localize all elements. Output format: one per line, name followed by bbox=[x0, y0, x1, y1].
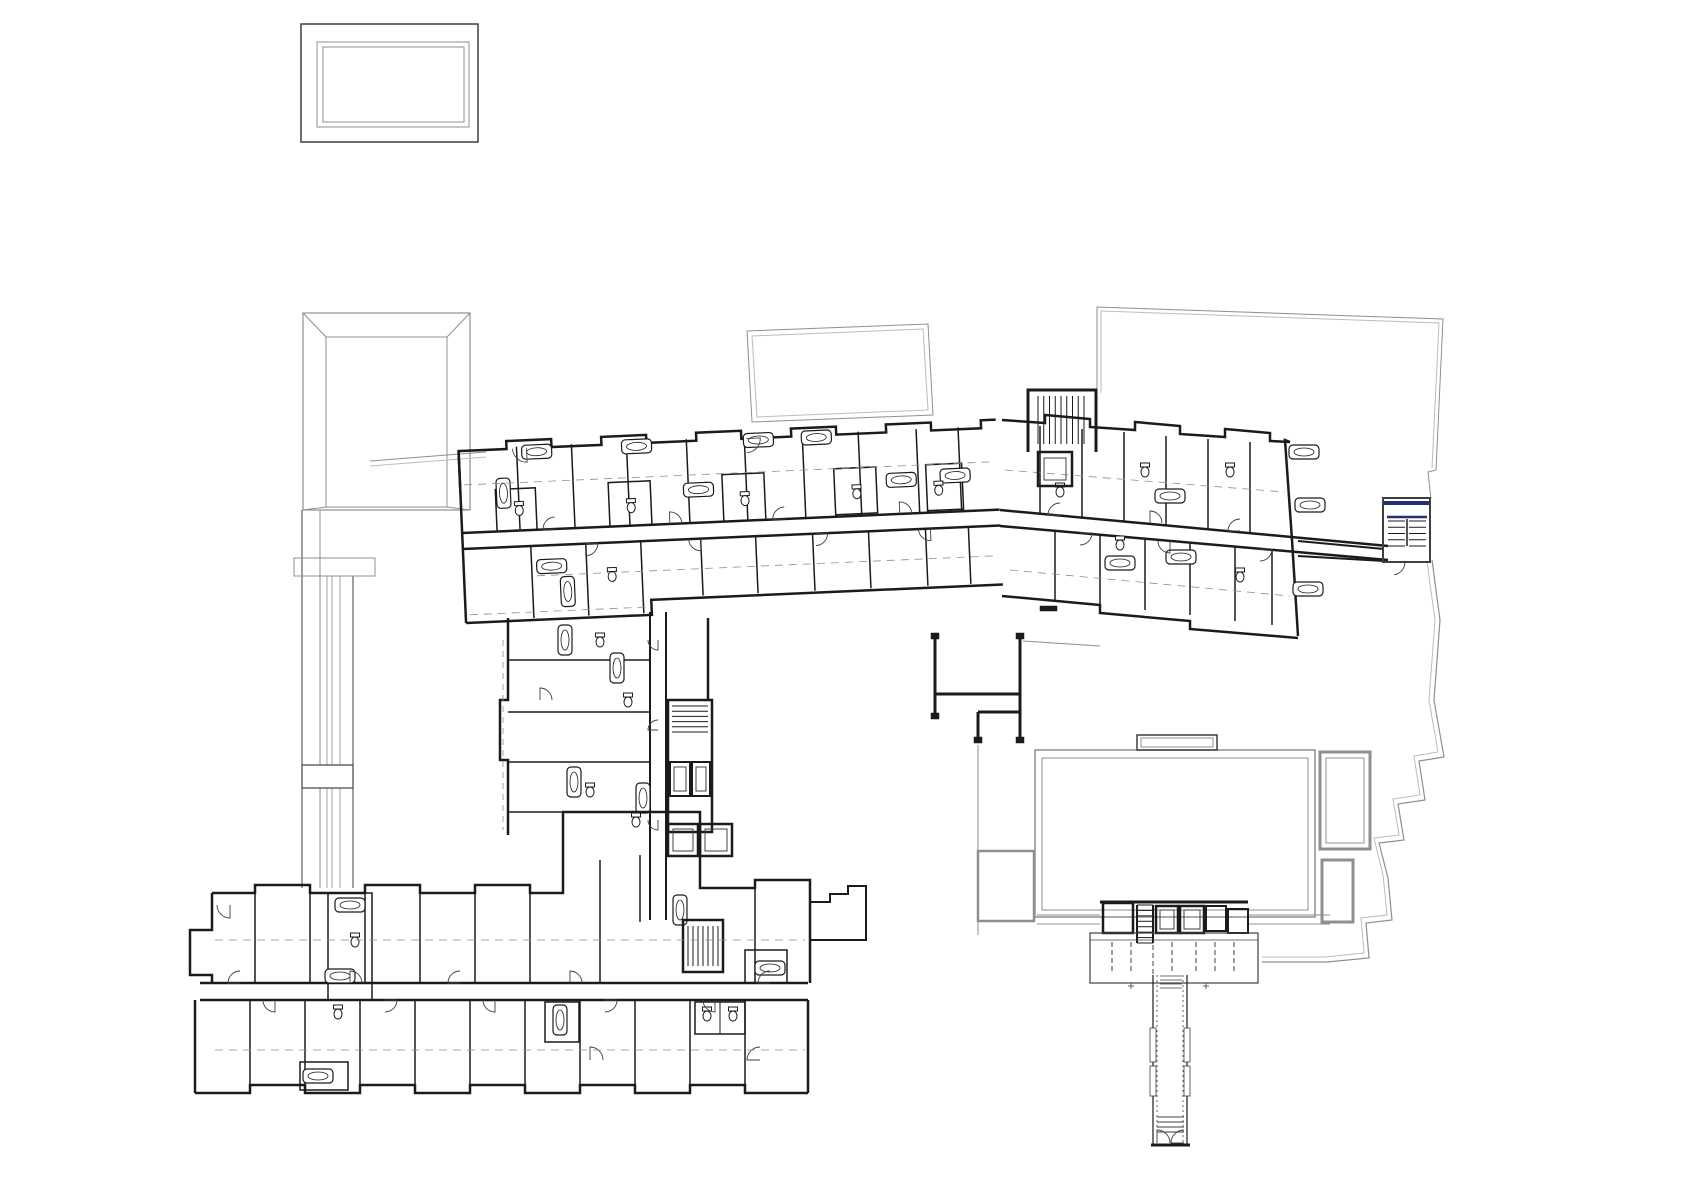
door-swing bbox=[543, 517, 556, 530]
entry-walkway bbox=[1150, 975, 1190, 1145]
toilet-icon bbox=[514, 501, 524, 515]
wall-polyline bbox=[465, 585, 1003, 623]
upper-wing-east bbox=[1000, 415, 1388, 638]
bathtub-icon bbox=[567, 767, 581, 797]
bathtub-icon bbox=[1155, 489, 1185, 503]
wall-line bbox=[641, 541, 644, 613]
wall-rect bbox=[1038, 452, 1072, 486]
bathtub-icon bbox=[558, 625, 572, 655]
door-swing bbox=[570, 971, 582, 983]
stair-treads bbox=[1388, 521, 1405, 546]
bathtub-icon bbox=[496, 478, 511, 509]
bathtub-icon bbox=[610, 653, 624, 683]
wall-line bbox=[916, 429, 920, 513]
toilet-icon bbox=[632, 813, 641, 827]
wall-rect bbox=[323, 47, 464, 122]
bathtub-icon bbox=[886, 472, 917, 487]
toilet-icon bbox=[1236, 568, 1245, 582]
stair-treads bbox=[1409, 521, 1426, 546]
wall-rect bbox=[1322, 860, 1353, 922]
wall-line bbox=[586, 544, 589, 616]
east-end-stair bbox=[1383, 498, 1430, 575]
door-swing bbox=[772, 507, 785, 520]
wall-line bbox=[858, 432, 862, 516]
bathtub-icon bbox=[560, 576, 575, 607]
bathtub-icon bbox=[621, 439, 652, 454]
floor-plan-canvas bbox=[0, 0, 1698, 1200]
door-swing bbox=[669, 511, 682, 524]
wall-polyline bbox=[810, 886, 866, 940]
wall-polyline bbox=[1101, 311, 1439, 468]
wall-line bbox=[744, 437, 748, 521]
door-swing bbox=[747, 1047, 760, 1060]
lower-wing bbox=[190, 812, 866, 1093]
toilet-icon bbox=[1116, 536, 1125, 550]
central-wing bbox=[500, 612, 712, 920]
toilet-icon bbox=[334, 1005, 343, 1019]
toilet-icon bbox=[607, 567, 617, 581]
wall-line bbox=[370, 452, 486, 461]
wall-polyline bbox=[190, 893, 212, 983]
wall-rect bbox=[303, 313, 470, 510]
bathtub-icon bbox=[521, 444, 552, 459]
bathtub-icon bbox=[1293, 582, 1323, 596]
wall-rect bbox=[326, 337, 447, 507]
door-swing bbox=[1150, 511, 1162, 523]
wall-rect bbox=[1016, 737, 1024, 743]
bathtub-icon bbox=[335, 898, 365, 912]
door-swing bbox=[689, 539, 702, 552]
toilet-icon bbox=[624, 693, 633, 707]
west-courtyard-frame bbox=[303, 313, 486, 510]
wall-rect bbox=[1320, 752, 1370, 849]
stair-treads bbox=[672, 706, 708, 732]
door-swing bbox=[1228, 519, 1240, 531]
door-swing bbox=[263, 1000, 275, 1012]
bathtub-icon bbox=[940, 468, 971, 483]
toilet-icon bbox=[1226, 463, 1235, 477]
wall-line bbox=[370, 457, 486, 466]
wall-line bbox=[802, 434, 806, 518]
toilet-icon bbox=[596, 633, 605, 647]
bathtub-icon bbox=[1105, 556, 1135, 570]
wall-line bbox=[470, 607, 649, 615]
wall-line bbox=[1010, 570, 1290, 596]
door-swing bbox=[448, 971, 460, 983]
wall-polyline bbox=[752, 329, 928, 417]
door-swing bbox=[228, 971, 240, 983]
wall-rect bbox=[978, 851, 1034, 921]
wall-polyline bbox=[1002, 415, 1290, 442]
roof-plan-top-left bbox=[301, 24, 478, 142]
wall-rect bbox=[931, 633, 939, 639]
bathtub-icon bbox=[536, 559, 567, 574]
door-swing bbox=[217, 905, 230, 918]
wall-line bbox=[447, 313, 470, 337]
wall-rect bbox=[931, 713, 939, 719]
wall-rect bbox=[1042, 758, 1308, 910]
wall-rect bbox=[1141, 738, 1213, 747]
door-swing bbox=[918, 529, 931, 542]
wall-polyline bbox=[1002, 596, 1298, 638]
wall-rect bbox=[1040, 606, 1057, 611]
bathtub-icon bbox=[553, 1005, 567, 1035]
toilet-icon bbox=[740, 491, 750, 505]
wall-line bbox=[571, 444, 575, 528]
door-swing bbox=[1392, 562, 1405, 575]
wall-rect bbox=[1184, 1028, 1190, 1062]
toilet-icon bbox=[626, 498, 636, 512]
door-swing bbox=[385, 1000, 397, 1012]
wall-polyline bbox=[747, 324, 933, 422]
wall-rect bbox=[696, 767, 706, 791]
wall-line bbox=[868, 531, 870, 588]
bathtub-icon bbox=[755, 961, 785, 975]
bathtub-icon bbox=[801, 430, 832, 445]
door-swing bbox=[816, 533, 829, 546]
wall-line bbox=[686, 439, 690, 523]
wall-line bbox=[303, 313, 326, 337]
wall-line bbox=[531, 546, 534, 618]
door-swing bbox=[605, 1000, 617, 1012]
wall-rect bbox=[1035, 750, 1315, 917]
wall-rect bbox=[1016, 633, 1024, 639]
wall-rect bbox=[1150, 1028, 1156, 1062]
wall-line bbox=[1023, 641, 1100, 646]
bathtub-icon bbox=[1166, 550, 1196, 564]
wall-line bbox=[756, 536, 758, 593]
wall-rect bbox=[294, 558, 375, 576]
upper-wing-west bbox=[458, 420, 1003, 623]
door-swing bbox=[590, 1047, 603, 1060]
door-swing bbox=[483, 1000, 495, 1012]
wall-rect bbox=[1150, 1066, 1156, 1096]
wall-rect bbox=[974, 737, 982, 743]
wall-line bbox=[459, 451, 467, 623]
pool-courtyard bbox=[978, 735, 1370, 924]
bathtub-icon bbox=[683, 482, 714, 497]
wall-rect bbox=[1228, 909, 1248, 933]
wall-line bbox=[813, 534, 815, 591]
toilet-icon bbox=[729, 1007, 738, 1021]
stair-treads bbox=[1137, 905, 1153, 943]
wall-rect bbox=[1184, 1066, 1190, 1096]
wall-rect bbox=[1160, 910, 1174, 929]
door-swing bbox=[540, 688, 552, 700]
bathtub-icon bbox=[636, 783, 650, 813]
bathtub-icon bbox=[1289, 445, 1319, 459]
bathtub-icon bbox=[303, 1069, 333, 1083]
west-terrace-strip bbox=[294, 510, 375, 888]
floor-plan-page bbox=[0, 0, 1698, 1200]
door-swing bbox=[899, 501, 912, 514]
wall-polyline bbox=[500, 618, 508, 835]
wall-rect bbox=[302, 765, 353, 788]
wall-rect bbox=[1090, 933, 1258, 983]
wall-line bbox=[537, 556, 998, 576]
stair-treads bbox=[688, 926, 718, 966]
toilet-icon bbox=[1141, 463, 1150, 477]
wall-rect bbox=[1184, 910, 1200, 929]
wall-rect bbox=[1044, 458, 1066, 480]
wall-rect bbox=[1103, 903, 1133, 933]
wall-polyline bbox=[195, 1085, 808, 1093]
toilet-icon bbox=[934, 481, 944, 495]
north-stair-core bbox=[1028, 390, 1096, 486]
door-swing bbox=[586, 543, 599, 556]
toilet-icon bbox=[852, 485, 862, 499]
toilet-icon bbox=[586, 783, 595, 797]
wall-rect bbox=[317, 42, 469, 127]
wall-line bbox=[925, 529, 927, 586]
wall-line bbox=[968, 527, 970, 584]
wall-rect bbox=[1137, 735, 1217, 750]
bathtub-icon bbox=[1295, 498, 1325, 512]
door-swing bbox=[1048, 503, 1060, 515]
wall-rect bbox=[674, 767, 686, 791]
